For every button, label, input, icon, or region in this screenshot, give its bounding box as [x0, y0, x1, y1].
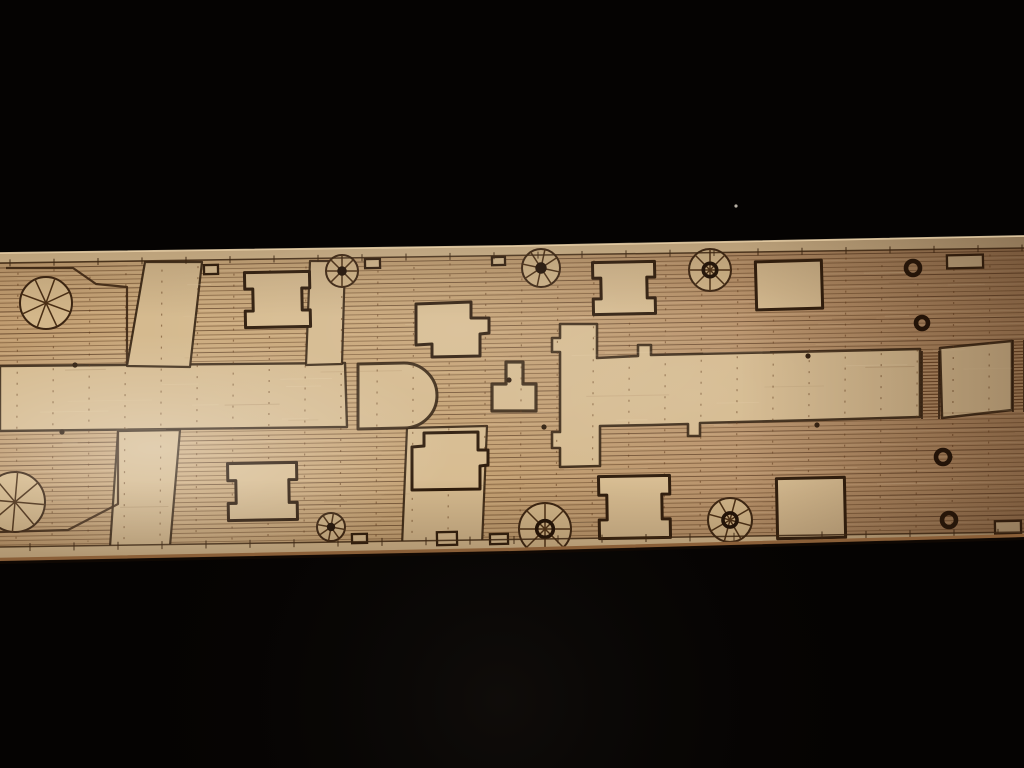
- deck-sheet-photo: Close-up photograph of a light wooden mo…: [0, 0, 1024, 768]
- dust-speck: [734, 204, 737, 207]
- deck-photo-svg: [0, 0, 1024, 768]
- photo-canvas: [0, 0, 1024, 768]
- photo-stage: Close-up photograph of a light wooden mo…: [0, 0, 1024, 768]
